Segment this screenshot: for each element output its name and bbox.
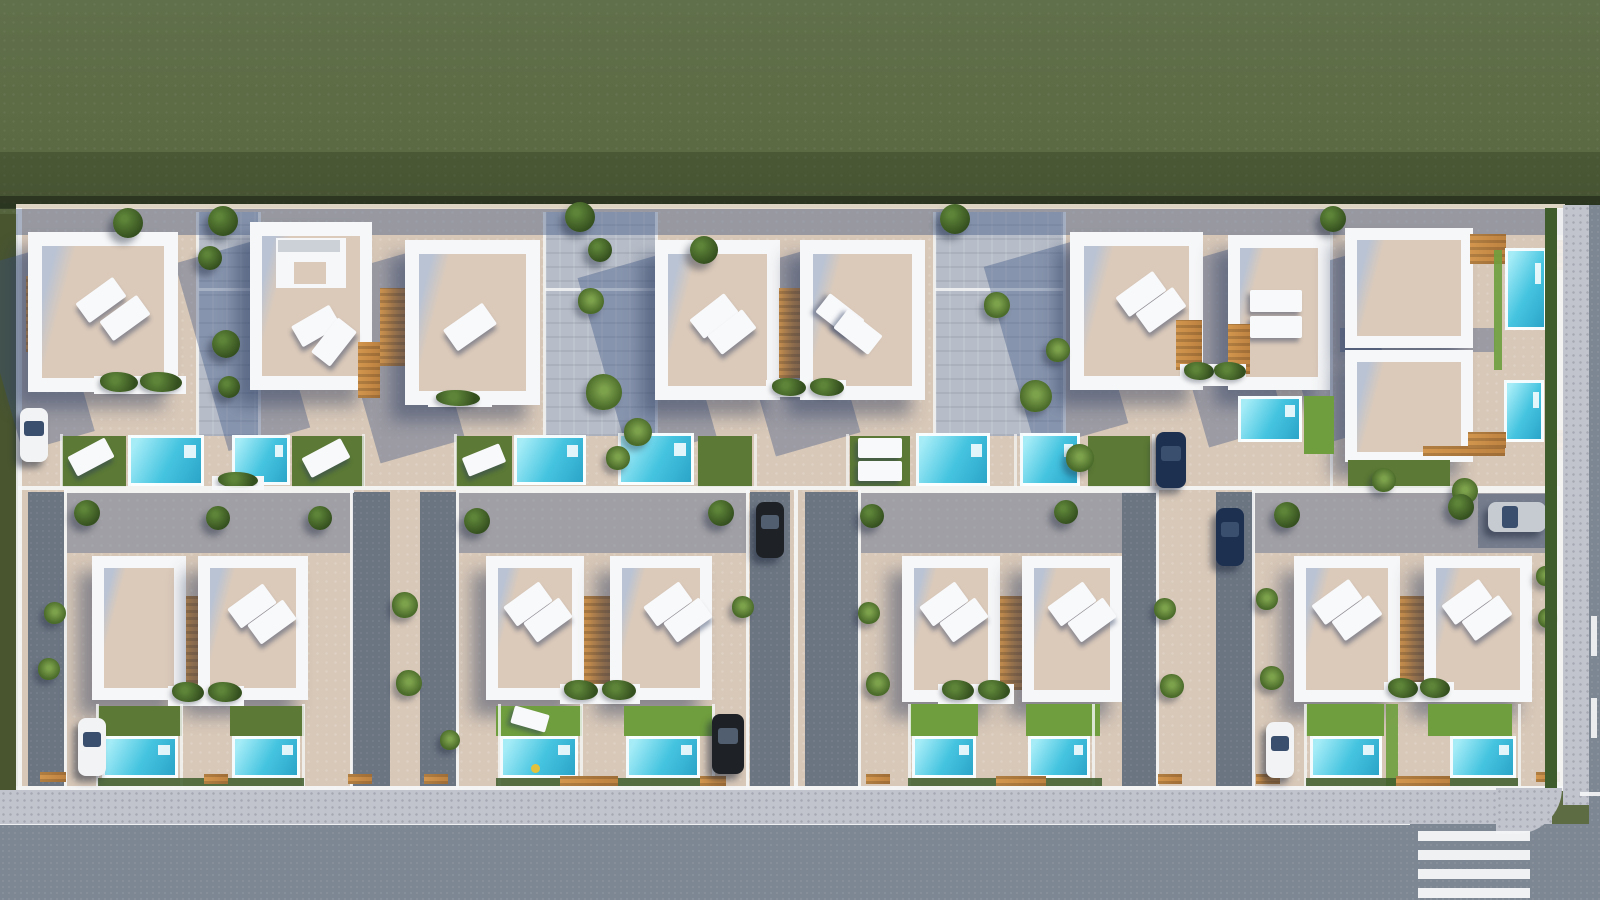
tree: [464, 508, 490, 534]
car-window: [24, 421, 44, 436]
car-black: [756, 502, 784, 558]
shrub: [1388, 678, 1418, 698]
car-window: [1161, 446, 1181, 461]
crosswalk-stripe: [1418, 850, 1530, 860]
driveway: [1122, 492, 1156, 786]
car-black: [712, 714, 744, 774]
pool: [232, 736, 300, 778]
wood-planter: [560, 776, 618, 786]
villa-roof: [1357, 362, 1461, 452]
pool: [916, 433, 990, 486]
wall-line: [1014, 434, 1017, 487]
lane-dash: [1591, 616, 1597, 656]
crosswalk-stripe: [1418, 888, 1530, 898]
tree: [308, 506, 332, 530]
tree: [212, 330, 240, 358]
tree: [565, 202, 595, 232]
shrub: [100, 372, 138, 392]
shrub: [140, 372, 182, 392]
lounger: [858, 438, 902, 458]
tree: [74, 500, 100, 526]
lounger: [1250, 316, 1302, 338]
wall-line: [846, 434, 849, 487]
lawn: [1026, 704, 1100, 736]
pool: [102, 736, 178, 778]
plot-shadow: [459, 493, 746, 553]
shrub: [564, 680, 598, 700]
wood-planter: [866, 774, 890, 784]
wood-planter: [700, 776, 726, 786]
palm: [586, 374, 622, 410]
shrub: [810, 378, 844, 396]
ball: [531, 764, 540, 773]
driveway: [352, 492, 390, 786]
wood-planter: [40, 772, 66, 782]
palm: [866, 672, 890, 696]
pool: [626, 736, 700, 778]
lawn: [1428, 704, 1512, 736]
villa-roof: [104, 568, 174, 688]
lawn: [1304, 396, 1334, 454]
wall-line: [498, 704, 501, 786]
shrub: [1184, 362, 1214, 380]
shrub: [208, 682, 242, 702]
plot-shadow: [861, 493, 1122, 553]
car-window: [718, 728, 738, 744]
tree: [1274, 502, 1300, 528]
palm: [1066, 444, 1094, 472]
car-window: [83, 732, 101, 747]
hedge-right: [1545, 208, 1557, 788]
pool: [1450, 736, 1516, 778]
pool: [500, 736, 578, 778]
tree: [218, 376, 240, 398]
shrub: [772, 378, 806, 396]
wall-line: [1092, 704, 1095, 786]
palm: [1046, 338, 1070, 362]
wall-line: [908, 704, 911, 786]
tree: [113, 208, 143, 238]
kitchen-units: [278, 240, 340, 252]
palm: [1154, 598, 1176, 620]
driveway: [28, 492, 64, 786]
sidewalk: [0, 790, 1552, 824]
lawn: [698, 436, 752, 487]
wall-line: [362, 434, 365, 487]
crosswalk-stripe: [1418, 869, 1530, 879]
wall-line: [933, 212, 936, 436]
lawn: [1348, 460, 1450, 488]
shrub: [1420, 678, 1450, 698]
tree: [1054, 500, 1078, 524]
palm: [732, 596, 754, 618]
wall-line: [1518, 704, 1521, 786]
car-navy: [1216, 508, 1244, 566]
tree: [708, 500, 734, 526]
shrub: [942, 680, 974, 700]
shrub: [978, 680, 1010, 700]
hedge-strip: [98, 778, 304, 786]
palm: [1260, 666, 1284, 690]
plot-wall: [350, 490, 353, 788]
car-window: [1271, 736, 1289, 751]
lounger: [1250, 290, 1302, 312]
wall-line: [60, 434, 63, 487]
tree: [690, 236, 718, 264]
palm: [858, 602, 880, 624]
lawn: [1088, 436, 1150, 487]
palm: [624, 418, 652, 446]
tree: [198, 246, 222, 270]
wood-planter: [348, 774, 372, 784]
kitchen-table: [294, 262, 326, 284]
wall-line: [543, 212, 546, 436]
palm: [440, 730, 460, 750]
lane-dash: [1591, 698, 1597, 738]
wall-line: [180, 704, 183, 786]
lawn: [624, 706, 712, 736]
pool: [1028, 736, 1090, 778]
palm: [606, 446, 630, 470]
car-window: [1221, 522, 1239, 537]
tree: [588, 238, 612, 262]
shrub: [172, 682, 204, 702]
palm: [396, 670, 422, 696]
tree: [206, 506, 230, 530]
aerial-villa-development-render: [0, 0, 1600, 900]
tree: [940, 204, 970, 234]
planter-box: [1468, 432, 1506, 448]
lawn: [98, 706, 182, 736]
pool: [1238, 396, 1302, 442]
wood-planter: [424, 774, 448, 784]
wall-line: [754, 434, 757, 487]
wall-line: [1152, 434, 1155, 487]
wood-planter: [204, 774, 228, 784]
hedge-strip: [1386, 704, 1398, 786]
tree: [1448, 494, 1474, 520]
shrub: [602, 680, 636, 700]
tree: [860, 504, 884, 528]
palm: [44, 602, 66, 624]
wall-line: [580, 704, 583, 786]
wood-planter: [1158, 774, 1182, 784]
car-window: [1502, 506, 1518, 528]
tree: [208, 206, 238, 236]
palm: [1372, 468, 1396, 492]
road: [0, 824, 1600, 900]
palm: [1256, 588, 1278, 610]
lawn: [910, 704, 978, 736]
tree: [1320, 206, 1346, 232]
pool: [1310, 736, 1382, 778]
pool: [1505, 248, 1547, 330]
villa-roof: [1240, 248, 1318, 377]
wall-line: [302, 704, 305, 786]
lawn: [1306, 704, 1384, 736]
lounger: [858, 461, 902, 481]
car-window: [761, 515, 779, 529]
wall-line: [454, 434, 457, 487]
pool: [514, 435, 586, 485]
lawn-strip: [1494, 250, 1502, 370]
driveway: [805, 492, 858, 786]
wood-planter: [1396, 776, 1450, 786]
car-white: [78, 718, 106, 776]
wood-planter: [996, 776, 1046, 786]
plot-wall: [1156, 490, 1159, 788]
villa-roof: [1357, 240, 1461, 336]
stairs: [380, 288, 405, 366]
stop-line: [1580, 792, 1600, 796]
shrub: [436, 390, 480, 406]
palm: [392, 592, 418, 618]
plot-wall: [794, 490, 798, 788]
pool: [128, 435, 204, 486]
stairs: [358, 342, 380, 398]
wall-line: [1304, 704, 1307, 786]
palm: [1020, 380, 1052, 412]
pool: [1504, 380, 1544, 442]
shrub: [1214, 362, 1246, 380]
crosswalk-stripe: [1418, 831, 1530, 841]
side-street-sidewalk: [1563, 205, 1589, 805]
palm: [984, 292, 1010, 318]
palm: [38, 658, 60, 680]
stairs: [779, 288, 801, 378]
lawn: [230, 706, 304, 736]
plot-wall: [746, 490, 749, 788]
palm: [578, 288, 604, 314]
pool: [912, 736, 976, 778]
palm: [1160, 674, 1184, 698]
